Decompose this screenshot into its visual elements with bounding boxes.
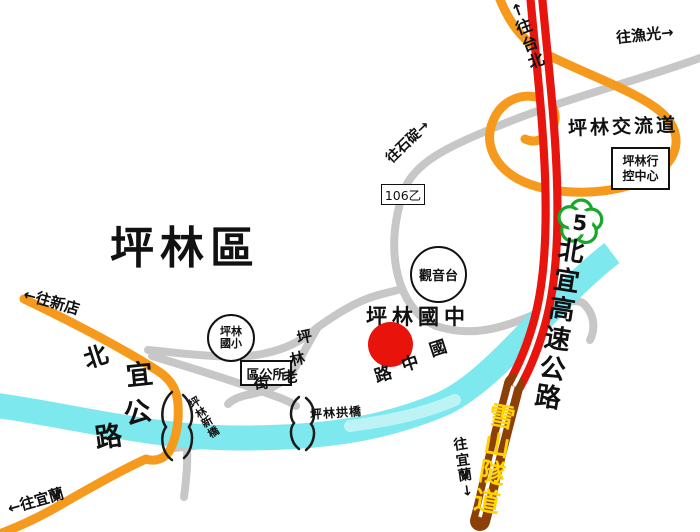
beiyi-name-char4: 路 — [93, 422, 123, 452]
pinglin-district-map: 5 坪林區 ↑往台北 往漁光→ 坪林交流道 坪林行 控中心 北宜高速公路 雪山隧… — [0, 0, 700, 532]
old-street-char1: 坪 — [296, 329, 314, 347]
control-center-line2: 控中心 — [622, 169, 658, 184]
interchange-label: 坪林交流道 — [568, 110, 679, 141]
old-street-char2: 林 — [289, 351, 307, 369]
route-106b-box: 106乙 — [381, 184, 425, 205]
traffic-control-center-box: 坪林行 控中心 — [611, 147, 670, 190]
guanyin-platform-circle: 觀音台 — [410, 246, 467, 303]
control-center-line1: 坪林行 — [622, 154, 658, 169]
hwy5-number: 5 — [571, 210, 588, 235]
old-street-char4: 街 — [253, 375, 270, 391]
arch-bridge-label: 坪林拱橋 — [309, 402, 362, 423]
pinglin-elementary-circle: 坪林 國小 — [207, 314, 255, 362]
pinglin-es-line2: 國小 — [220, 338, 242, 350]
district-title: 坪林區 — [110, 212, 260, 276]
beiyi-name-char2: 宜 — [125, 361, 155, 391]
old-street-char3: 老 — [282, 369, 299, 385]
